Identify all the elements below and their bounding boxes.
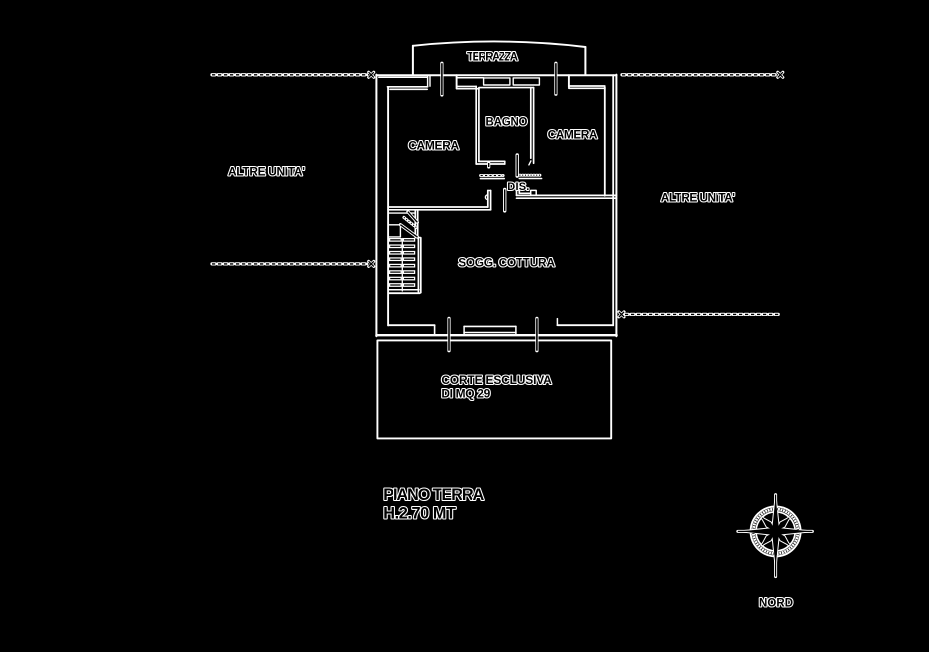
svg-text:ALTRE UNITA': ALTRE UNITA' xyxy=(228,164,305,178)
svg-text:PIANO TERRA: PIANO TERRA xyxy=(383,486,484,504)
svg-text:ALTRE UNITA': ALTRE UNITA' xyxy=(661,191,735,205)
svg-text:SOGG. COTTURA: SOGG. COTTURA xyxy=(458,255,555,269)
svg-text:DI MQ 29: DI MQ 29 xyxy=(441,386,490,400)
svg-text:TERRAZZA: TERRAZZA xyxy=(467,52,518,64)
svg-text:CORTE ESCLUSIVA: CORTE ESCLUSIVA xyxy=(441,373,552,387)
svg-text:CAMERA: CAMERA xyxy=(408,139,459,153)
svg-text:DIS.: DIS. xyxy=(507,181,529,193)
svg-text:BAGNO: BAGNO xyxy=(486,116,528,128)
svg-text:NORD: NORD xyxy=(759,598,793,610)
svg-text:CAMERA: CAMERA xyxy=(548,127,598,141)
svg-text:H.2.70 MT: H.2.70 MT xyxy=(383,504,456,522)
